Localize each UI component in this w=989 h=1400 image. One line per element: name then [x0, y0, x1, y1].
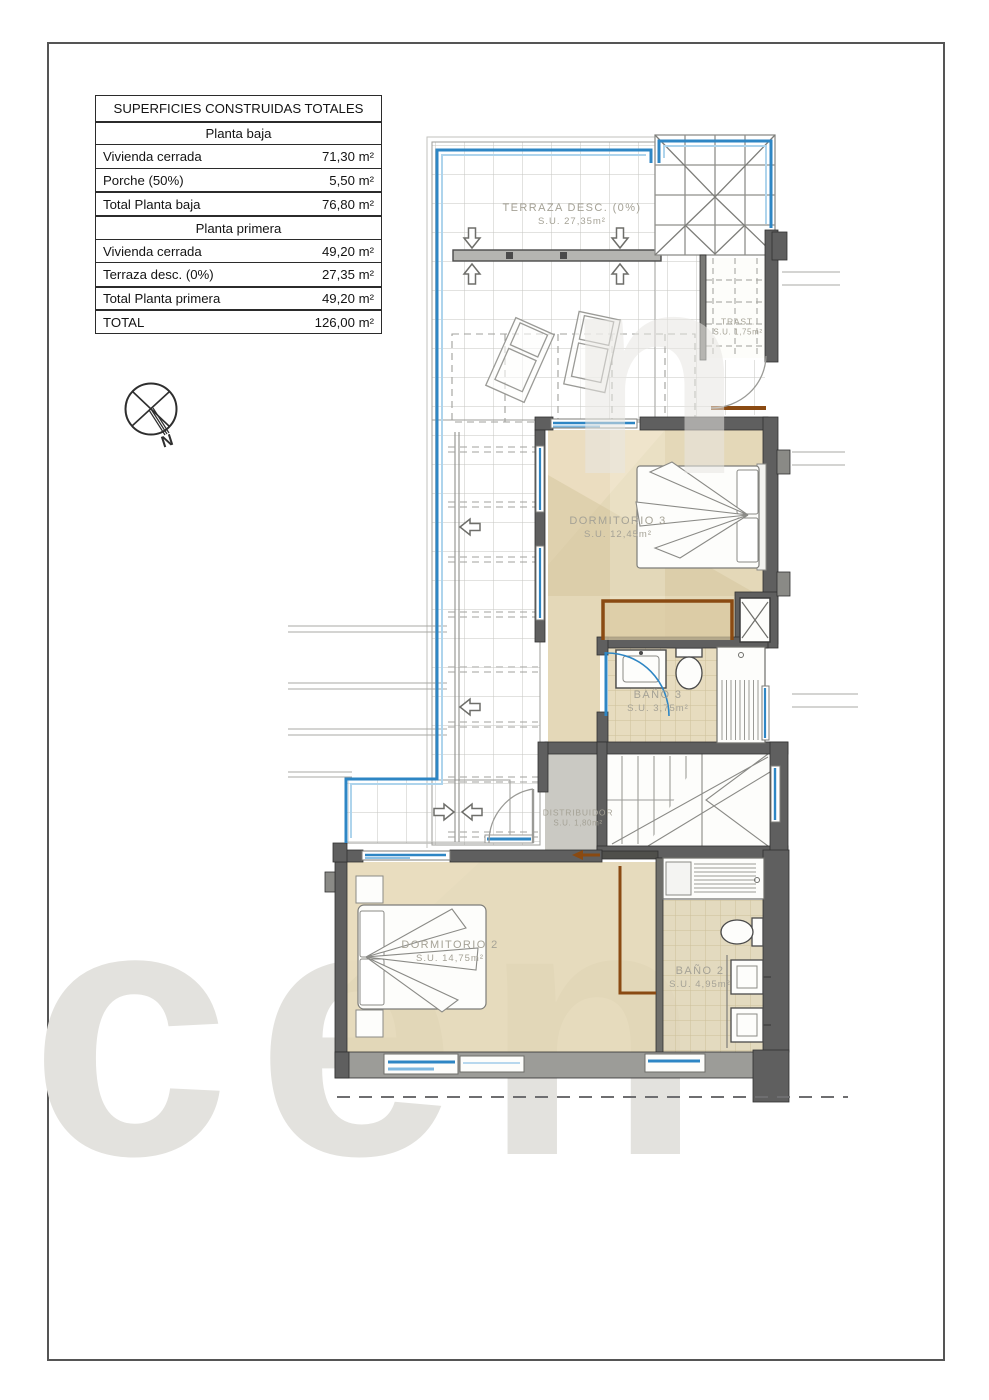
table-title: SUPERFICIES CONSTRUIDAS TOTALES: [95, 95, 382, 122]
row-value: 49,20 m²: [322, 291, 374, 306]
room-label-dormitorio2: DORMITORIO 2 S.U. 14,75m²: [401, 939, 498, 965]
room-name: TRAST.: [713, 317, 762, 328]
room-label-distribuidor: DISTRIBUIDOR S.U. 1,80m²: [543, 808, 614, 829]
areas-table: SUPERFICIES CONSTRUIDAS TOTALES Planta b…: [95, 95, 382, 334]
room-area: S.U. 12,45m²: [569, 529, 666, 541]
table-row-total: Total Planta primera49,20 m²: [95, 286, 382, 311]
row-value: 5,50 m²: [329, 173, 374, 188]
room-name: TERRAZA DESC. (0%): [503, 202, 642, 216]
section-header-text: Planta baja: [206, 126, 272, 141]
shower2: [663, 858, 764, 899]
section-header-planta-primera: Planta primera: [95, 215, 382, 240]
row-value: 76,80 m²: [322, 197, 374, 212]
room-name: DISTRIBUIDOR: [543, 808, 614, 819]
row-value: 27,35 m²: [322, 267, 374, 282]
watermark-fragment: n: [565, 228, 742, 518]
compass-n-label: N: [159, 432, 175, 452]
row-label: Total Planta baja: [103, 197, 322, 212]
table-row: Porche (50%)5,50 m²: [95, 168, 382, 193]
bathroom2-toilet: [721, 918, 763, 946]
shower3: [717, 647, 765, 743]
room-name: BAÑO 3: [627, 689, 689, 703]
room-name: DORMITORIO 3: [569, 515, 666, 529]
row-value: 71,30 m²: [322, 149, 374, 164]
room-label-bano3: BAÑO 3 S.U. 3,75m²: [627, 689, 689, 715]
room-name: DORMITORIO 2: [401, 939, 498, 953]
north-arrow-compass: N: [118, 378, 192, 462]
table-row: Vivienda cerrada49,20 m²: [95, 239, 382, 264]
room-area: S.U. 4,95m²: [669, 979, 731, 991]
section-header-planta-baja: Planta baja: [95, 121, 382, 146]
room-label-terraza: TERRAZA DESC. (0%) S.U. 27,35m²: [503, 202, 642, 228]
row-value: 126,00 m²: [315, 315, 374, 330]
table-row: Terraza desc. (0%)27,35 m²: [95, 262, 382, 287]
compass-needle: [149, 408, 169, 435]
section-header-text: Planta primera: [196, 221, 282, 236]
wardrobe-dormitorio3: [603, 601, 732, 640]
room-label-bano2: BAÑO 2 S.U. 4,95m²: [669, 965, 731, 991]
row-label: Vivienda cerrada: [103, 244, 322, 259]
row-label: Vivienda cerrada: [103, 149, 322, 164]
row-label: Porche (50%): [103, 173, 329, 188]
room-label-trastero: TRAST. S.U. 1,75m²: [713, 317, 762, 338]
staircase: [607, 754, 770, 846]
room-area: S.U. 27,35m²: [503, 216, 642, 228]
room-area: S.U. 1,80m²: [543, 818, 614, 828]
plan-sheet: cen n SUPERFICIES CONSTRUIDAS TOTALES Pl…: [0, 0, 989, 1400]
shaft-x-box: [740, 598, 770, 642]
table-title-text: SUPERFICIES CONSTRUIDAS TOTALES: [114, 101, 364, 116]
table-row-grand-total: TOTAL126,00 m²: [95, 309, 382, 334]
table-row-total: Total Planta baja76,80 m²: [95, 191, 382, 216]
table-row: Vivienda cerrada71,30 m²: [95, 144, 382, 169]
room-area: S.U. 1,75m²: [713, 327, 762, 337]
room-area: S.U. 14,75m²: [401, 953, 498, 965]
room-name: BAÑO 2: [669, 965, 731, 979]
row-value: 49,20 m²: [322, 244, 374, 259]
room-label-dormitorio3: DORMITORIO 3 S.U. 12,45m²: [569, 515, 666, 541]
room-area: S.U. 3,75m²: [627, 703, 689, 715]
row-label: Total Planta primera: [103, 291, 322, 306]
bathroom3-toilet: [676, 648, 702, 689]
row-label: TOTAL: [103, 315, 315, 330]
row-label: Terraza desc. (0%): [103, 267, 322, 282]
